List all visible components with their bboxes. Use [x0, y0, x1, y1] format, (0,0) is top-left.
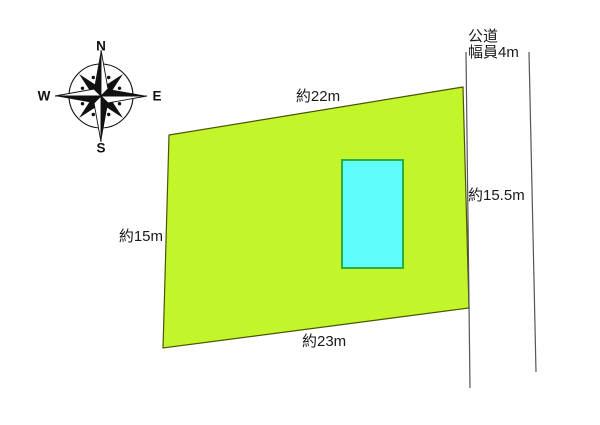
- road-edge-right: [529, 52, 536, 372]
- compass-point-w: [55, 89, 101, 96]
- compass-fleck: [81, 87, 84, 90]
- building-footprint: [342, 160, 403, 268]
- compass-label-south: S: [96, 141, 105, 156]
- road-label: 公道 幅員4m: [468, 29, 519, 61]
- compass-point-w: [55, 96, 101, 103]
- compass-fleck: [107, 76, 110, 79]
- compass-point-n: [94, 50, 101, 96]
- compass-fleck: [92, 76, 95, 79]
- dimension-left: 約15m: [100, 229, 163, 245]
- compass-point-s: [101, 96, 108, 142]
- compass-point-e: [101, 96, 147, 103]
- compass-point-e: [101, 89, 147, 96]
- compass-rose-icon: N S E W: [38, 39, 162, 156]
- compass-label-north: N: [96, 39, 106, 54]
- road-width-label: 幅員4m: [468, 45, 519, 61]
- compass-point-n: [101, 50, 108, 96]
- dimension-right: 約15.5m: [468, 188, 525, 204]
- compass-label-west: W: [38, 89, 51, 104]
- compass-fleck: [118, 102, 121, 105]
- land-parcel: [163, 87, 469, 348]
- compass-fleck: [92, 113, 95, 116]
- plot-diagram: N S E W 公道 幅員4m 約22m 約15m 約23m 約15.5m: [0, 0, 600, 425]
- dimension-top: 約22m: [281, 89, 355, 105]
- compass-point-s: [94, 96, 101, 142]
- compass-fleck: [118, 87, 121, 90]
- dimension-bottom: 約23m: [302, 334, 346, 350]
- compass-fleck: [81, 102, 84, 105]
- compass-label-east: E: [152, 89, 161, 104]
- compass-fleck: [107, 113, 110, 116]
- road-name: 公道: [468, 29, 519, 45]
- diagram-canvas: N S E W: [0, 0, 600, 425]
